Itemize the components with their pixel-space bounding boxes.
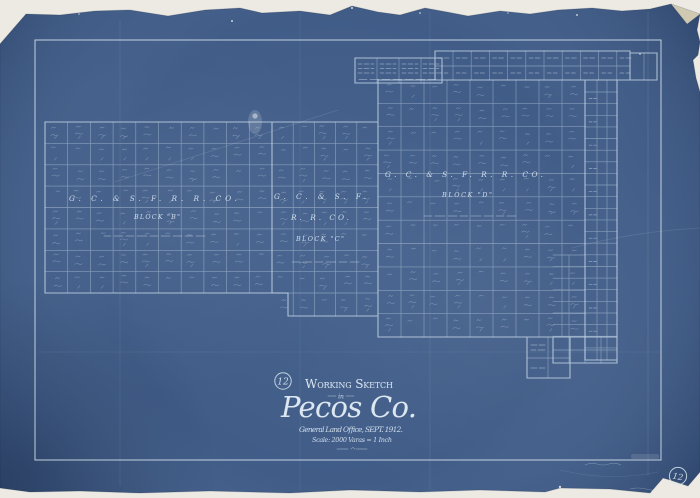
scanned-blueprint-page: G. C. & S. F. R. R. CO. BLOCK "B" G. C. … — [0, 0, 700, 498]
map-heading: Working Sketch — [305, 377, 393, 391]
map-canvas: G. C. & S. F. R. R. CO. BLOCK "B" G. C. … — [0, 0, 700, 498]
corner-sheet-number: 12 — [672, 471, 684, 483]
block-c-company-line2: R. R. CO. — [290, 213, 349, 222]
county-title: Pecos Co. — [280, 390, 417, 424]
sheet-number: 12 — [277, 378, 289, 388]
office-date-line: General Land Office, SEPT. 1912. — [299, 425, 403, 434]
scale-line: Scale: 2000 Varas = 1 Inch — [312, 436, 392, 444]
block-b-name-label: BLOCK "B" — [133, 213, 180, 221]
